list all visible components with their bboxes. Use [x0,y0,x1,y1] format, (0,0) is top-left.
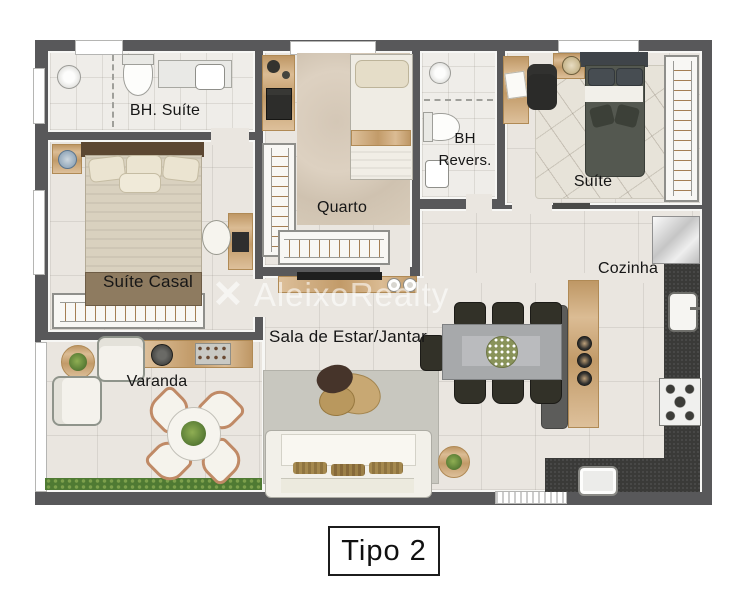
kitchen-sink [578,466,618,496]
varanda-planter [45,478,262,490]
dining-centerpiece [486,336,518,368]
apartment-plan: BH. Suíte Suíte Casal Varanda Quarto BH … [35,40,712,505]
door-suite [512,200,552,214]
label-bh-suite: BH. Suíte [90,102,240,120]
island-pendant-3 [577,371,592,386]
shower-head [57,65,81,89]
quarto-wardrobe-horizontal [278,230,390,265]
fridge [652,216,700,264]
varanda-railing [35,342,47,492]
door-bh-suite [211,128,249,145]
quarto-bed-bench [351,130,411,146]
quarto-desk-item [267,60,280,73]
kitchen-oven-handle [690,307,700,310]
label-suite: Suíte [553,173,633,191]
varanda-bottle-tray [195,343,231,365]
quarto-laptop [266,88,292,120]
shower-glass-revers [424,99,493,101]
plan-title: Tipo 2 [341,535,427,568]
shower-head-revers [429,62,451,84]
sofa-pillow-3 [369,462,403,474]
label-cozinha: Cozinha [585,260,671,278]
chair-casal [202,220,231,255]
suite-desk-papers [504,71,527,100]
door-suite-casal [248,279,270,317]
suite-wardrobe-hangers [673,61,692,195]
island-pendant-1 [577,336,592,351]
laptop-casal [232,232,249,252]
speaker-1 [387,278,401,292]
tv [297,272,382,280]
varanda-table-plant [181,421,206,446]
label-varanda: Varanda [92,373,222,391]
stove [659,378,701,426]
quarto-bed-pillow [355,60,409,88]
quarto-wardrobe-h-hangers [284,239,383,258]
kitchen-counter-bottom [545,458,700,492]
window-suite-casal [33,190,45,275]
quarto-bed-blanket [351,146,411,177]
sofa-pillow-1 [293,462,327,474]
pillow-casal-3 [162,155,201,183]
bath-sink [195,64,225,90]
label-sala: Sala de Estar/Jantar [267,327,429,347]
pillow-casal-4 [119,173,161,193]
suite-door-leaf [553,203,590,209]
label-bh-revers-2: Revers. [422,152,508,169]
kitchen-oven [668,292,698,332]
window-top-bath [75,40,123,55]
speaker-2 [403,278,417,292]
island-pendant-2 [577,353,592,368]
floor-plan-image: BH. Suíte Suíte Casal Varanda Quarto BH … [0,0,756,600]
suite-bed-sheet-fold [585,86,643,102]
door-bh-revers [466,194,492,213]
threshold-bottom [495,491,567,504]
toilet-tank [122,54,154,65]
suite-lamp [562,56,581,75]
suite-bed-pillow-1 [588,68,615,86]
plan-title-box: Tipo 2 [328,526,440,576]
suite-office-chair [527,64,557,110]
window-bath [33,68,45,124]
quarto-desk-item-2 [282,71,290,79]
sofa-back [281,478,414,493]
varanda-side-table-plant [69,353,87,371]
sofa-pillow-2 [331,464,365,476]
varanda-grill [151,344,173,366]
lamp-casal [58,150,77,169]
suite-bed-pillow-2 [616,68,643,86]
label-suite-casal: Suíte Casal [75,272,221,292]
sofa-side-table-plant [446,454,462,470]
label-quarto: Quarto [292,199,392,217]
suite-wardrobe [664,55,699,202]
label-bh-revers-1: BH [422,130,508,147]
